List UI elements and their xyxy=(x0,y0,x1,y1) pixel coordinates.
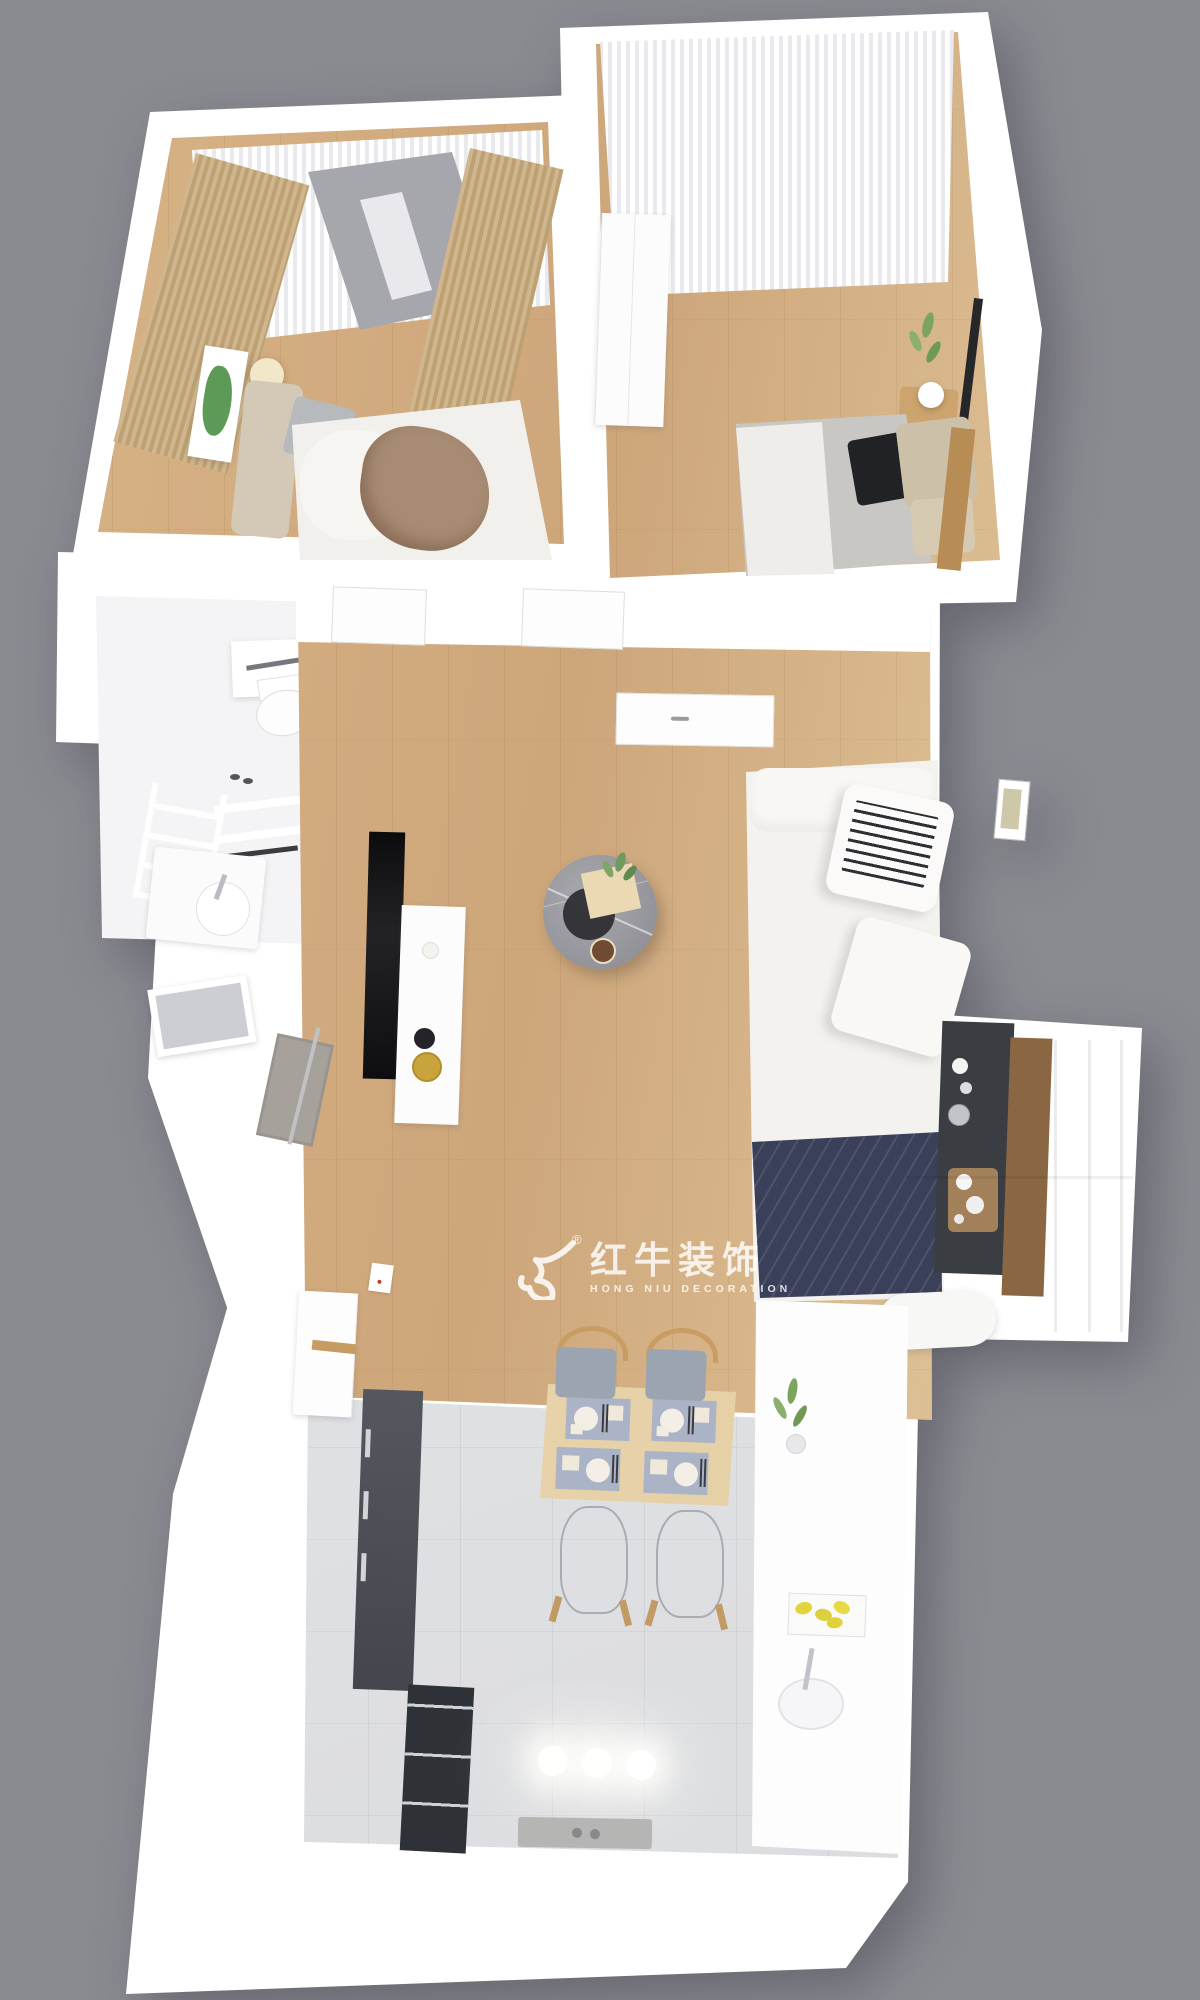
lemon xyxy=(826,1616,843,1629)
appliance-handle xyxy=(365,1429,371,1457)
table-plant xyxy=(596,850,646,890)
console-ornament xyxy=(422,942,439,959)
chopsticks xyxy=(602,1404,605,1432)
balcony-frame-line-3 xyxy=(1120,1040,1123,1332)
lemon xyxy=(832,1598,853,1616)
console-gold-tray xyxy=(412,1052,442,1082)
chopsticks xyxy=(612,1455,615,1483)
hanging-bag xyxy=(368,1263,394,1294)
balcony-sill xyxy=(905,1176,1133,1179)
leaf xyxy=(600,859,615,879)
wardrobe xyxy=(594,213,670,427)
leaf xyxy=(791,1404,810,1429)
wardrobe-door-line xyxy=(627,214,635,426)
pendant-light-3 xyxy=(626,1750,656,1780)
leaf xyxy=(621,864,639,883)
console-teapot xyxy=(414,1028,435,1049)
hongniu-bull-logo: ® xyxy=(516,1236,580,1300)
art-canvas xyxy=(1000,788,1021,829)
ghost-chair xyxy=(656,1510,724,1618)
plate xyxy=(674,1462,699,1487)
watermark-text: 红牛装饰 HONG NIU DECORATION xyxy=(590,1242,791,1295)
leaf xyxy=(771,1396,789,1421)
leaf xyxy=(924,339,944,364)
lemon xyxy=(794,1600,813,1616)
placemat xyxy=(555,1447,620,1491)
pendant-light-2 xyxy=(582,1748,612,1778)
balcony-frame-line-2 xyxy=(1088,1040,1091,1332)
tray-item xyxy=(954,1214,964,1224)
hall-door-1 xyxy=(331,586,427,645)
apartment-footprint xyxy=(0,0,1200,2000)
living-door xyxy=(616,693,775,748)
desk-wood-frame xyxy=(1002,1037,1053,1296)
sink-knob xyxy=(572,1828,582,1838)
appliance-black-lower xyxy=(400,1684,475,1853)
bedside-lamp xyxy=(918,382,944,408)
registered-mark: ® xyxy=(572,1232,582,1247)
placemat xyxy=(651,1399,716,1443)
kitchen-shelf-unit xyxy=(293,1291,358,1418)
tray-bowl xyxy=(966,1196,984,1214)
dining-chair-gray-seat xyxy=(555,1347,617,1399)
lemon-tray xyxy=(787,1593,866,1638)
hall-door-2 xyxy=(521,588,625,650)
napkin xyxy=(650,1459,668,1475)
appliance-handle xyxy=(361,1553,367,1581)
leaf xyxy=(613,851,628,873)
plate xyxy=(586,1458,611,1483)
appliance-dark-tall xyxy=(353,1389,423,1691)
napkin xyxy=(562,1455,580,1471)
desk-dark-top xyxy=(934,1021,1015,1275)
plant-pot xyxy=(786,1434,806,1454)
counter-plant xyxy=(766,1378,820,1458)
appliance-handle xyxy=(363,1491,369,1519)
brand-name-cn: 红牛装饰 xyxy=(590,1242,791,1279)
chopsticks xyxy=(688,1406,691,1434)
floorplan-render: ® 红牛装饰 HONG NIU DECORATION xyxy=(0,0,1200,2000)
wall-art-right xyxy=(993,779,1030,842)
brand-name-en: HONG NIU DECORATION xyxy=(590,1283,791,1295)
ghost-chair xyxy=(560,1506,628,1614)
balcony-frame-line-1 xyxy=(1054,1040,1057,1332)
pendant-light-1 xyxy=(538,1746,568,1776)
tv-console xyxy=(394,905,466,1125)
plant-wall-decal xyxy=(905,310,951,374)
leaf xyxy=(786,1377,799,1404)
desk-cup-2 xyxy=(960,1082,972,1094)
art-green-paint xyxy=(198,364,237,438)
watermark: ® 红牛装饰 HONG NIU DECORATION xyxy=(516,1236,791,1300)
table-brown-dish xyxy=(590,938,616,964)
napkin xyxy=(692,1407,710,1423)
shoe-left xyxy=(230,774,240,780)
placemat xyxy=(643,1451,708,1495)
chopsticks xyxy=(700,1459,703,1487)
counter-sink xyxy=(778,1678,844,1730)
sink-basin xyxy=(196,882,250,936)
bottom-sink-unit xyxy=(518,1817,653,1849)
chopsticks xyxy=(616,1455,619,1483)
dining-chair-gray-seat xyxy=(645,1349,707,1401)
bull-logo-glyph xyxy=(516,1236,580,1300)
leaf xyxy=(920,311,936,339)
napkin xyxy=(606,1405,624,1421)
side-dish xyxy=(656,1426,668,1436)
side-dish xyxy=(570,1424,582,1434)
sink-knob xyxy=(590,1829,600,1839)
placemat xyxy=(565,1397,630,1441)
desk-kettle xyxy=(948,1104,970,1126)
shoe-right xyxy=(243,778,253,784)
desk-cup-1 xyxy=(952,1058,968,1074)
door-handle xyxy=(671,717,689,721)
chopsticks xyxy=(704,1459,707,1487)
bag-red-logo xyxy=(377,1280,382,1285)
